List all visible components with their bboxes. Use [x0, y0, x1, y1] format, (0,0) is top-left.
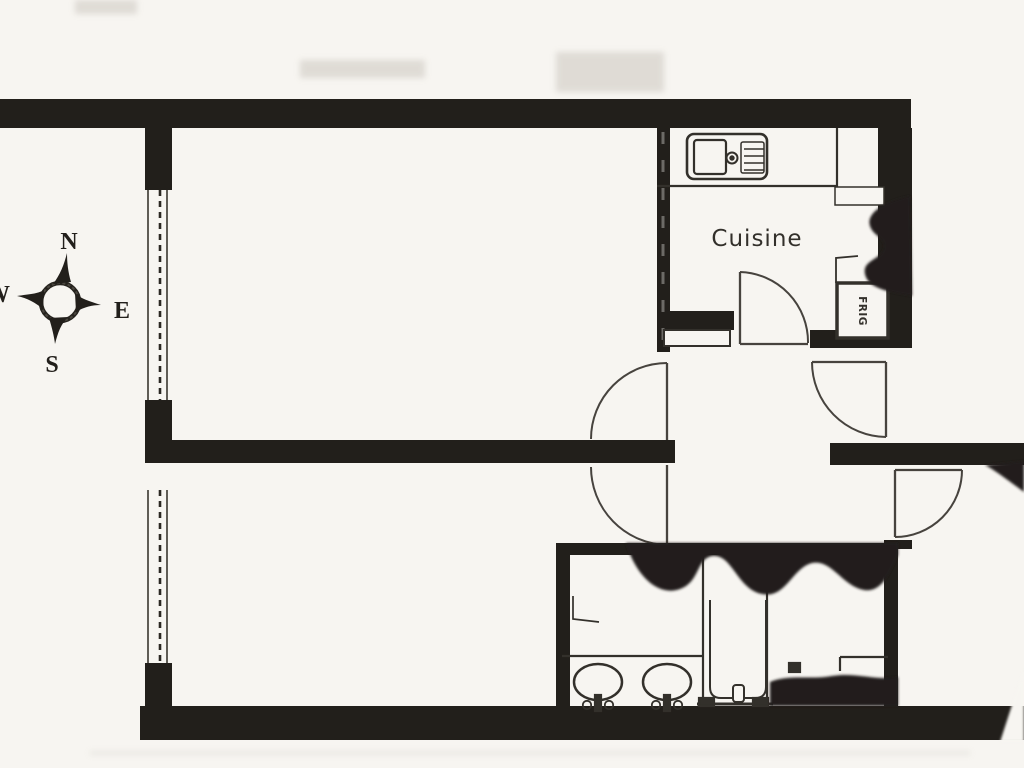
window-upper-room [146, 190, 171, 400]
exterior-top-wall [0, 99, 911, 128]
interior-wall-right [830, 443, 1024, 465]
floor-plan-drawing: N E S W Cuisine FRIG [0, 0, 1024, 768]
wc-mark [789, 663, 800, 672]
exterior-bottom-wall [140, 706, 1024, 740]
scan-smudge-bottom-line [90, 751, 970, 755]
fridge-label: FRIG [856, 296, 868, 326]
floor-plan-scan: N E S W Cuisine FRIG [0, 0, 1024, 768]
scan-smudge-top-center [556, 52, 664, 92]
compass-label-west: W [0, 282, 10, 308]
left-wall-middle-segment [145, 400, 172, 463]
scan-blob-bathroom-floor [770, 675, 898, 706]
interior-wall-between-left-rooms [168, 440, 675, 463]
bathroom-left-wall [556, 543, 570, 706]
scan-smudge-top-edge [75, 0, 137, 14]
kitchen-faucet-dot [730, 156, 733, 159]
compass-label-east: E [114, 298, 130, 324]
kitchen-stub-cabinet [664, 330, 730, 346]
kitchen-wall-stub [657, 311, 734, 330]
bathtub-foot-left [699, 698, 714, 706]
window-lower-room [146, 490, 171, 663]
kitchen-label: Cuisine [711, 226, 802, 252]
faucet-stem-left [595, 695, 601, 711]
compass-label-north: N [60, 229, 78, 255]
left-wall-upper-segment [145, 128, 172, 190]
scan-smudge-top-left [300, 60, 425, 78]
scan-blob-bathroom-top [626, 543, 898, 595]
bathtub-foot-right [753, 698, 768, 706]
kitchen-wall-niche [835, 187, 884, 205]
bathtub-tap [733, 685, 744, 702]
faucet-stem-right [664, 695, 670, 711]
compass-label-south: S [45, 352, 58, 378]
